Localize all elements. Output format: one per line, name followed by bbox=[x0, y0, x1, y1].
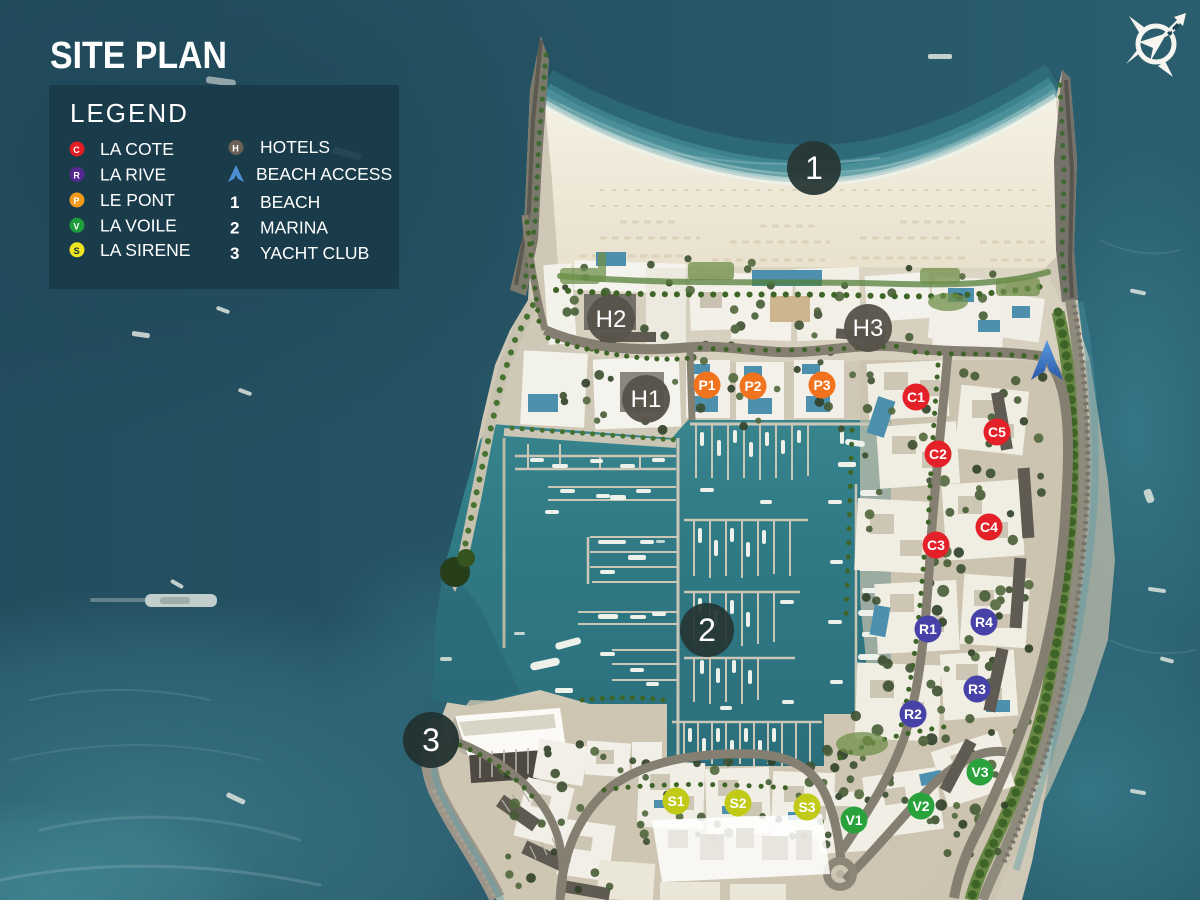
svg-text:C5: C5 bbox=[988, 424, 1006, 440]
svg-text:H2: H2 bbox=[596, 306, 627, 333]
svg-text:LE PONT: LE PONT bbox=[100, 190, 175, 210]
svg-text:C1: C1 bbox=[907, 389, 925, 405]
svg-text:H1: H1 bbox=[631, 386, 662, 413]
svg-text:LEGEND: LEGEND bbox=[70, 98, 189, 128]
svg-text:V1: V1 bbox=[845, 812, 862, 828]
svg-text:SITE PLAN: SITE PLAN bbox=[50, 35, 227, 77]
svg-text:2: 2 bbox=[698, 612, 716, 648]
svg-text:HOTELS: HOTELS bbox=[260, 137, 330, 157]
svg-text:V: V bbox=[73, 221, 79, 231]
svg-text:C: C bbox=[73, 145, 80, 155]
svg-text:S3: S3 bbox=[798, 799, 815, 815]
svg-text:3: 3 bbox=[422, 722, 440, 758]
svg-text:LA VOILE: LA VOILE bbox=[100, 215, 177, 235]
svg-text:BEACH: BEACH bbox=[260, 192, 320, 212]
svg-text:LA RIVE: LA RIVE bbox=[100, 165, 166, 185]
svg-text:P2: P2 bbox=[744, 378, 761, 394]
svg-text:C4: C4 bbox=[980, 519, 998, 535]
svg-text:S2: S2 bbox=[729, 795, 746, 811]
svg-text:LA COTE: LA COTE bbox=[100, 139, 174, 159]
svg-text:BEACH ACCESS: BEACH ACCESS bbox=[256, 164, 392, 184]
svg-text:R: R bbox=[73, 171, 80, 181]
svg-text:S: S bbox=[74, 246, 80, 256]
svg-text:C3: C3 bbox=[927, 537, 945, 553]
svg-text:R1: R1 bbox=[919, 621, 937, 637]
svg-text:R3: R3 bbox=[968, 681, 986, 697]
svg-text:C2: C2 bbox=[929, 446, 947, 462]
svg-text:R4: R4 bbox=[975, 614, 993, 630]
svg-text:YACHT CLUB: YACHT CLUB bbox=[260, 243, 369, 263]
svg-text:V2: V2 bbox=[912, 798, 929, 814]
svg-text:P: P bbox=[73, 196, 79, 206]
svg-text:P1: P1 bbox=[698, 377, 715, 393]
svg-text:1: 1 bbox=[230, 193, 239, 212]
svg-text:S1: S1 bbox=[667, 793, 684, 809]
svg-text:MARINA: MARINA bbox=[260, 218, 328, 238]
svg-text:LA SIRENE: LA SIRENE bbox=[100, 240, 190, 260]
svg-text:V3: V3 bbox=[971, 764, 988, 780]
svg-text:R2: R2 bbox=[904, 706, 922, 722]
svg-text:P3: P3 bbox=[813, 377, 830, 393]
svg-text:H3: H3 bbox=[853, 315, 884, 342]
svg-text:1: 1 bbox=[805, 150, 823, 186]
svg-text:3: 3 bbox=[230, 244, 239, 263]
svg-text:2: 2 bbox=[230, 219, 239, 238]
svg-text:H: H bbox=[232, 144, 239, 154]
